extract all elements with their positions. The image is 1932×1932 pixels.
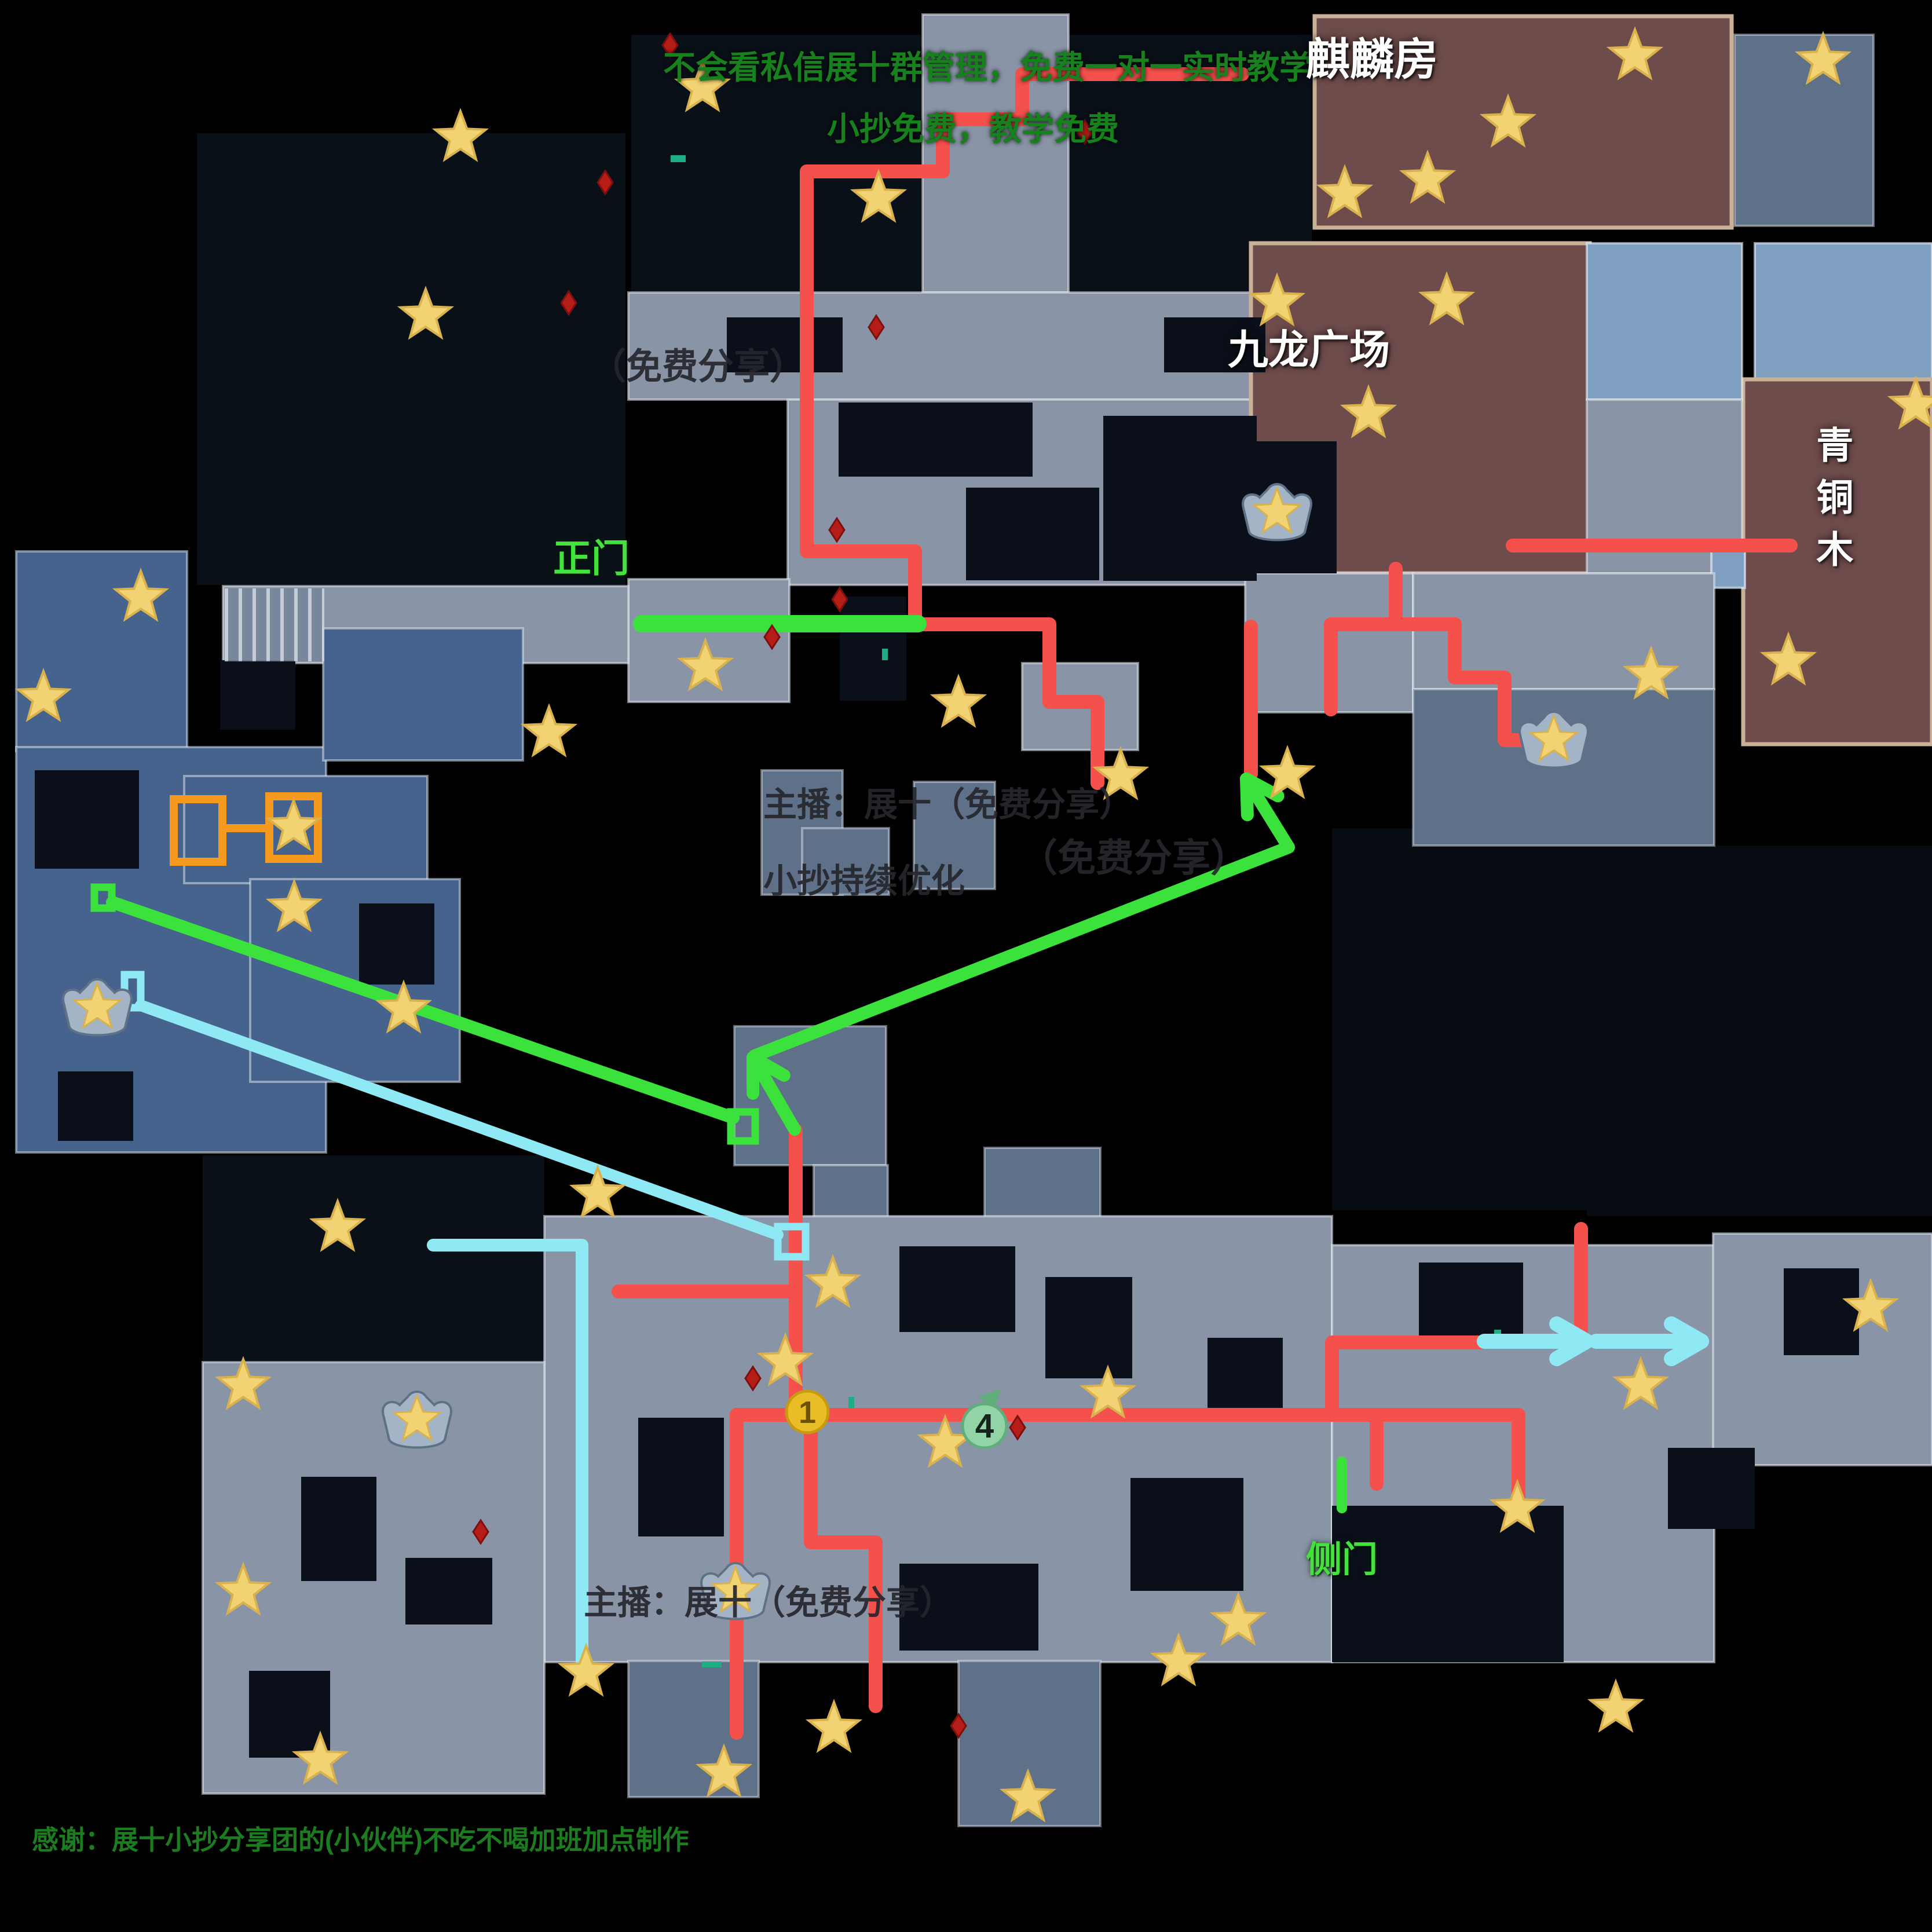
map-room-dark: [1130, 1478, 1243, 1591]
watermark-host-bottom: 主播：展十（免费分享）: [584, 1585, 953, 1622]
map-room-dark: [1332, 1506, 1564, 1662]
map-canvas: 14: [0, 0, 1932, 1932]
map-room: [1735, 35, 1874, 226]
label-bronze-wood: 青铜木: [1812, 426, 1852, 582]
map-room: [323, 628, 523, 760]
map-room-dark: [966, 488, 1099, 580]
map-room-dark: [58, 1071, 133, 1141]
label-side-gate: 侧门: [1306, 1541, 1378, 1580]
bg-patch: [197, 133, 625, 585]
map-room: [628, 579, 789, 702]
watermark-share-top: （免费分享）: [590, 347, 806, 387]
arrowhead: [1246, 779, 1247, 815]
door-marker: [848, 1397, 854, 1410]
marker-4-number: 4: [975, 1407, 994, 1445]
star-icon: [524, 707, 574, 755]
map-room-dark: [1419, 1263, 1523, 1344]
label-main-gate: 正门: [553, 537, 630, 580]
door-marker: [882, 649, 888, 660]
map-room-dark: [359, 903, 434, 985]
watermark-share-right: （免费分享）: [1019, 837, 1249, 879]
star-icon: [933, 677, 983, 725]
map-room: [1755, 243, 1932, 379]
banner-line-2: 小抄免费，教学免费: [827, 111, 1119, 147]
label-kowloon-plaza: 九龙广场: [1228, 328, 1390, 372]
marker-1-number: 1: [799, 1395, 816, 1430]
map-room-dark: [1045, 1277, 1132, 1378]
map-room: [16, 551, 187, 751]
map-room-dark: [220, 660, 295, 730]
door-marker: [702, 1662, 722, 1667]
bg-patch: [1587, 846, 1932, 1216]
main-gate-pier: [225, 588, 324, 661]
label-qilin-room: 麒麟房: [1306, 36, 1438, 85]
door-marker: [671, 155, 686, 162]
watermark-host-mid: 主播：展十（免费分享）: [763, 786, 1133, 824]
watermark-optimize: 小抄持续优化: [763, 863, 965, 900]
map-room-dark: [1668, 1448, 1755, 1529]
banner-line-1: 不会看私信展十群管理，免费一对一实时教学: [663, 50, 1312, 86]
star-icon: [1590, 1682, 1641, 1730]
credit-text: 感谢：展十小抄分享团的(小伙伴)不吃不喝加班加点制作: [32, 1825, 689, 1855]
map-room-dark: [1784, 1268, 1859, 1355]
star-icon: [808, 1702, 859, 1750]
map-room: [1587, 243, 1742, 400]
map-room-dark: [1103, 416, 1257, 581]
game-map: 14 不会看私信展十群管理，免费一对一实时教学 小抄免费，教学免费 （免费分享）…: [0, 0, 1932, 1932]
map-room-dark: [638, 1418, 724, 1536]
map-room-dark: [899, 1246, 1015, 1332]
map-room-dark: [839, 402, 1033, 477]
map-room-dark: [301, 1477, 376, 1581]
map-room-dark: [840, 597, 906, 701]
map-room-dark: [35, 770, 139, 869]
bg-patch: [203, 1155, 544, 1361]
map-room-dark: [1207, 1338, 1283, 1412]
map-room-dark: [405, 1558, 492, 1624]
